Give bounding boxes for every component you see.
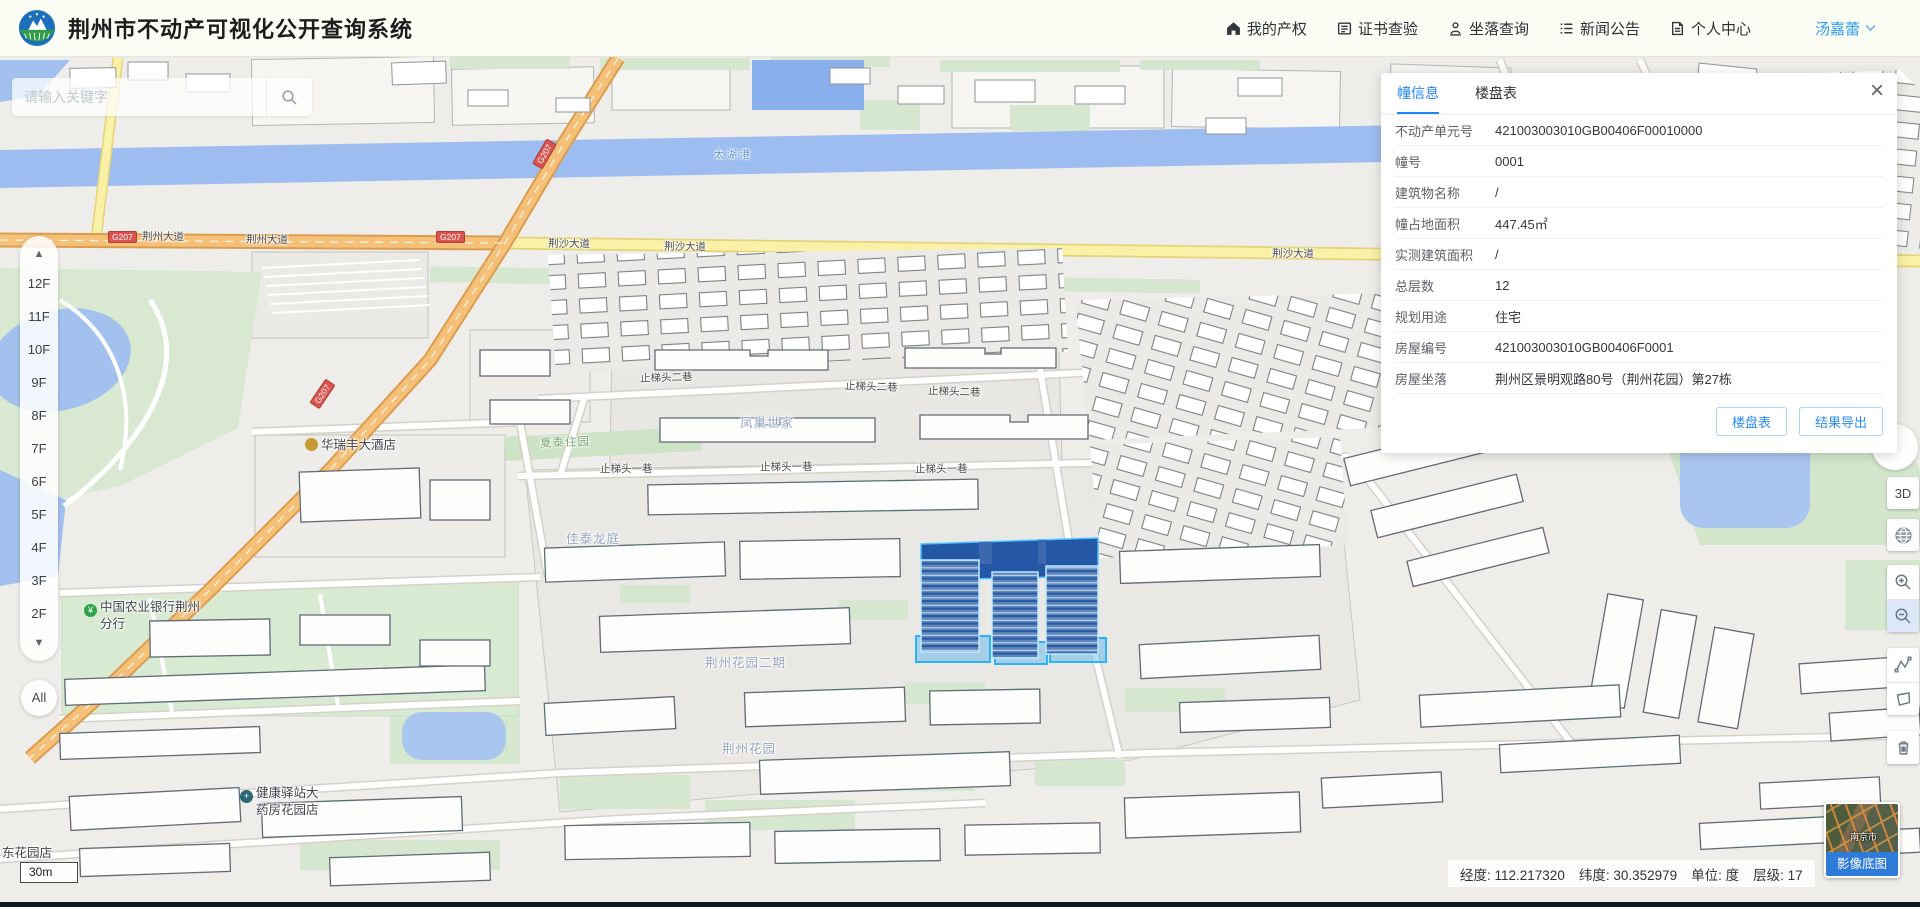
coordinate-statusbar: 经度: 112.217320 纬度: 30.352979 单位: 度 层级: 1… bbox=[1448, 860, 1815, 887]
scale-bar: 30m bbox=[20, 862, 78, 883]
zoom-controls bbox=[1887, 565, 1919, 632]
row-value: 住宅 bbox=[1495, 307, 1521, 326]
globe-button[interactable] bbox=[1887, 519, 1919, 551]
row-label: 规划用途 bbox=[1395, 307, 1495, 326]
username: 汤嘉蕾 bbox=[1815, 18, 1860, 39]
location-person-icon bbox=[1448, 21, 1463, 36]
app-header: 荆州市不动产可视化公开查询系统 我的产权 证书查验 坐落查询 新闻公告 个人中心 bbox=[0, 0, 1920, 57]
nav-certificate-check[interactable]: 证书查验 bbox=[1337, 18, 1418, 39]
nav-my-property[interactable]: 我的产权 bbox=[1226, 18, 1307, 39]
unit-readout: 单位: 度 bbox=[1691, 864, 1739, 884]
tab-building-table[interactable]: 楼盘表 bbox=[1475, 73, 1517, 114]
floor-all-button[interactable]: All bbox=[21, 680, 57, 716]
nav-news[interactable]: 新闻公告 bbox=[1559, 18, 1640, 39]
row-label: 总层数 bbox=[1395, 276, 1495, 295]
search-input[interactable] bbox=[12, 78, 266, 116]
building-info-panel: × 幢信息 楼盘表 不动产单元号421003003010GB00406F0001… bbox=[1381, 73, 1897, 453]
row-label: 建筑物名称 bbox=[1395, 183, 1495, 202]
table-row: 规划用途住宅 bbox=[1395, 301, 1883, 332]
table-row: 房屋编号421003003010GB00406F0001 bbox=[1395, 332, 1883, 363]
document-icon bbox=[1670, 21, 1685, 36]
floor-item-11f[interactable]: 11F bbox=[20, 300, 58, 333]
floor-item-8f[interactable]: 8F bbox=[20, 399, 58, 432]
building-table-button[interactable]: 楼盘表 bbox=[1716, 407, 1787, 436]
floor-item-9f[interactable]: 9F bbox=[20, 366, 58, 399]
nav-label: 我的产权 bbox=[1247, 18, 1307, 39]
nav-location-query[interactable]: 坐落查询 bbox=[1448, 18, 1529, 39]
map-search bbox=[12, 78, 312, 116]
latitude-readout: 纬度: 30.352979 bbox=[1579, 864, 1677, 884]
table-row: 房屋坐落荆州区景明观路80号（荆州花园）第27栋 bbox=[1395, 363, 1883, 394]
search-icon bbox=[281, 89, 298, 106]
basemap-thumb-city: 南京市 bbox=[1850, 830, 1877, 843]
clear-button[interactable] bbox=[1887, 731, 1919, 764]
zoom-in-button[interactable] bbox=[1887, 566, 1919, 599]
row-label: 不动产单元号 bbox=[1395, 121, 1495, 140]
search-button[interactable] bbox=[266, 78, 312, 116]
certificate-icon bbox=[1337, 21, 1352, 36]
table-row: 总层数12 bbox=[1395, 270, 1883, 301]
row-value: / bbox=[1495, 247, 1499, 262]
row-value: 421003003010GB00406F00010000 bbox=[1495, 123, 1702, 138]
app-window: 止梯头二巷 止梯头二巷 止梯头二巷 止梯头一巷 止梯头一巷 止梯头一巷 荆沙大道… bbox=[0, 0, 1920, 907]
row-value: 421003003010GB00406F0001 bbox=[1495, 340, 1674, 355]
floor-up-icon[interactable]: ▲ bbox=[20, 241, 58, 267]
nav-label: 证书查验 bbox=[1358, 18, 1418, 39]
chevron-down-icon bbox=[1865, 24, 1876, 32]
home-icon bbox=[1226, 21, 1241, 36]
floor-item-2f[interactable]: 2F bbox=[20, 597, 58, 630]
row-label: 实测建筑面积 bbox=[1395, 245, 1495, 264]
floor-down-icon[interactable]: ▼ bbox=[20, 630, 58, 656]
selected-building-highlight[interactable] bbox=[916, 538, 1106, 664]
row-value: / bbox=[1495, 185, 1499, 200]
floor-item-12f[interactable]: 12F bbox=[20, 267, 58, 300]
zoom-in-icon bbox=[1894, 573, 1912, 591]
table-row: 实测建筑面积/ bbox=[1395, 239, 1883, 270]
panel-tabs: 幢信息 楼盘表 bbox=[1381, 73, 1897, 115]
floor-item-3f[interactable]: 3F bbox=[20, 564, 58, 597]
panel-footer: 楼盘表 结果导出 bbox=[1381, 394, 1897, 436]
nav-label: 个人中心 bbox=[1691, 18, 1751, 39]
3d-toggle-button[interactable]: 3D bbox=[1887, 477, 1919, 509]
trash-icon bbox=[1895, 739, 1912, 756]
window-bottom-edge bbox=[0, 902, 1920, 907]
floor-item-7f[interactable]: 7F bbox=[20, 432, 58, 465]
nav-label: 坐落查询 bbox=[1469, 18, 1529, 39]
news-list-icon bbox=[1559, 21, 1574, 36]
row-value: 0001 bbox=[1495, 154, 1524, 169]
app-logo-icon bbox=[18, 9, 56, 47]
export-results-button[interactable]: 结果导出 bbox=[1799, 407, 1883, 436]
top-nav: 我的产权 证书查验 坐落查询 新闻公告 个人中心 汤嘉蕾 bbox=[1226, 18, 1902, 39]
row-value: 447.45㎡ bbox=[1495, 214, 1548, 233]
nav-label: 新闻公告 bbox=[1580, 18, 1640, 39]
globe-icon bbox=[1894, 526, 1913, 545]
polyline-measure-icon bbox=[1894, 656, 1912, 674]
row-label: 房屋编号 bbox=[1395, 338, 1495, 357]
nav-personal-center[interactable]: 个人中心 bbox=[1670, 18, 1751, 39]
row-value: 荆州区景明观路80号（荆州花园）第27栋 bbox=[1495, 369, 1732, 388]
row-label: 幢占地面积 bbox=[1395, 214, 1495, 233]
floor-item-10f[interactable]: 10F bbox=[20, 333, 58, 366]
longitude-readout: 经度: 112.217320 bbox=[1460, 864, 1565, 884]
basemap-label: 影像底图 bbox=[1826, 852, 1898, 876]
page-title: 荆州市不动产可视化公开查询系统 bbox=[68, 12, 413, 44]
floor-item-5f[interactable]: 5F bbox=[20, 498, 58, 531]
user-menu[interactable]: 汤嘉蕾 bbox=[1815, 18, 1876, 39]
floor-selector: ▲ 12F 11F 10F 9F 8F 7F 6F 5F 4F 3F 2F ▼ bbox=[20, 236, 58, 661]
row-label: 幢号 bbox=[1395, 152, 1495, 171]
basemap-switcher[interactable]: 南京市 影像底图 bbox=[1824, 802, 1900, 878]
table-row: 幢号0001 bbox=[1395, 146, 1883, 177]
zoom-level-readout: 层级: 17 bbox=[1753, 864, 1803, 884]
measure-area-button[interactable] bbox=[1887, 682, 1919, 715]
row-label: 房屋坐落 bbox=[1395, 369, 1495, 388]
table-row: 建筑物名称/ bbox=[1395, 177, 1883, 208]
floor-item-4f[interactable]: 4F bbox=[20, 531, 58, 564]
measure-controls bbox=[1887, 648, 1919, 715]
table-row: 幢占地面积447.45㎡ bbox=[1395, 208, 1883, 239]
table-row: 不动产单元号421003003010GB00406F00010000 bbox=[1395, 115, 1883, 146]
close-icon[interactable]: × bbox=[1870, 79, 1884, 103]
panel-rows: 不动产单元号421003003010GB00406F00010000 幢号000… bbox=[1381, 115, 1897, 394]
tab-building-info[interactable]: 幢信息 bbox=[1397, 73, 1439, 114]
floor-item-6f[interactable]: 6F bbox=[20, 465, 58, 498]
measure-distance-button[interactable] bbox=[1887, 649, 1919, 682]
row-value: 12 bbox=[1495, 278, 1509, 293]
zoom-out-button[interactable] bbox=[1887, 599, 1919, 632]
polygon-measure-icon bbox=[1894, 690, 1912, 708]
zoom-out-icon bbox=[1894, 607, 1912, 625]
